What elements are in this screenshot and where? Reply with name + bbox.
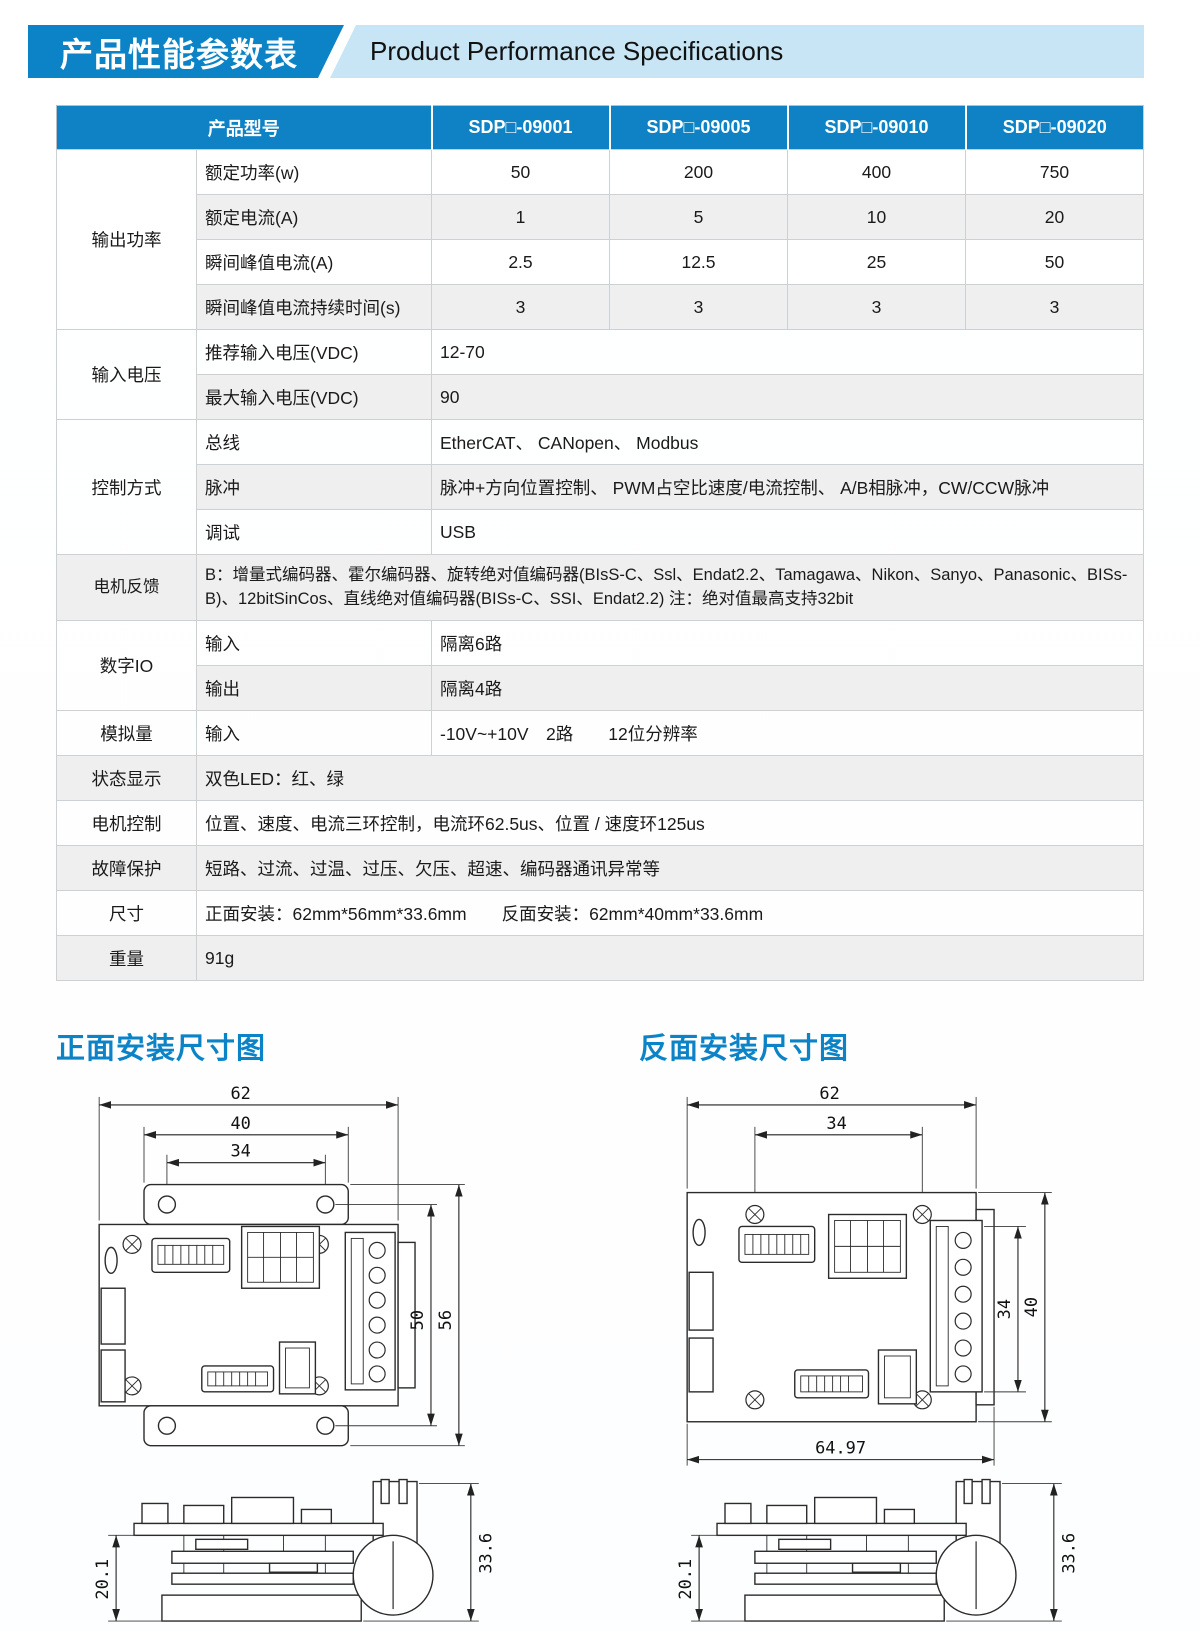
- group-digital-io: 数字IO: [57, 621, 197, 711]
- table-row: 电机反馈 B：增量式编码器、霍尔编码器、旋转绝对值编码器(BIsS-C、Ssl、…: [57, 555, 1144, 621]
- io-connector: [152, 1238, 230, 1272]
- mounting-hole: [158, 1417, 175, 1434]
- page-title-en: Product Performance Specifications: [330, 25, 1144, 78]
- table-row: 输出功率 额定功率(w) 50 200 400 750: [57, 150, 1144, 195]
- io-connector: [739, 1226, 815, 1262]
- table-row: 数字IO 输入 隔离6路: [57, 621, 1144, 666]
- dim-total-height: 33.6: [1059, 1533, 1079, 1574]
- dim-outer-height: 40: [1021, 1297, 1041, 1317]
- dim-hole-height: 50: [407, 1310, 427, 1330]
- dim-outer-height: 56: [435, 1310, 455, 1330]
- mounting-drawings: 正面安装尺寸图 62 40 34: [56, 1025, 1150, 1633]
- dim-total-width: 64.97: [815, 1438, 866, 1458]
- table-row: 额定电流(A) 1 5 10 20: [57, 195, 1144, 240]
- table-row: 重量 91g: [57, 936, 1144, 981]
- table-row: 状态显示 双色LED：红、绿: [57, 756, 1144, 801]
- side-connector: [689, 1338, 713, 1392]
- base-plate: [162, 1595, 361, 1621]
- table-header-row: 产品型号 SDP□-09001 SDP□-09005 SDP□-09010 SD…: [57, 106, 1144, 150]
- label-dimensions: 尺寸: [57, 891, 197, 936]
- led-window: [105, 1247, 117, 1273]
- base-plate: [745, 1595, 944, 1621]
- table-row: 输入电压 推荐输入电压(VDC) 12-70: [57, 330, 1144, 375]
- table-row: 最大输入电压(VDC) 90: [57, 375, 1144, 420]
- table-row: 尺寸 正面安装：62mm*56mm*33.6mm 反面安装：62mm*40mm*…: [57, 891, 1144, 936]
- front-mount-title: 正面安装尺寸图: [56, 1025, 511, 1067]
- mounting-hole: [317, 1196, 334, 1213]
- col-header-model: 产品型号: [57, 106, 432, 150]
- label-status-display: 状态显示: [57, 756, 197, 801]
- led-window: [693, 1219, 705, 1245]
- col-header-model-1: SDP□-09001: [432, 106, 610, 150]
- vent-grid: [242, 1226, 320, 1288]
- terminal-block: [930, 1220, 982, 1391]
- group-control-mode: 控制方式: [57, 420, 197, 555]
- dim-board-height: 20.1: [92, 1559, 112, 1600]
- side-connector: [101, 1350, 125, 1402]
- table-row: 脉冲 脉冲+方向位置控制、 PWM占空比速度/电流控制、 A/B相脉冲，CW/C…: [57, 465, 1144, 510]
- group-analog: 模拟量: [57, 711, 197, 756]
- front-side-view: 20.1 33.6: [92, 1480, 496, 1621]
- mounting-hole: [317, 1417, 334, 1434]
- dim-board-height: 20.1: [675, 1559, 695, 1600]
- label-motor-control: 电机控制: [57, 801, 197, 846]
- page-header: 产品性能参数表 Product Performance Specificatio…: [28, 25, 1144, 78]
- front-mount-section: 正面安装尺寸图 62 40 34: [56, 1025, 511, 1633]
- dim-inner-height: 34: [994, 1299, 1014, 1319]
- label-motor-feedback: 电机反馈: [57, 555, 197, 621]
- back-view-drawing: 62 34: [639, 1075, 1094, 1633]
- lower-board: [755, 1573, 936, 1584]
- terminal-block: [345, 1232, 395, 1389]
- mid-board: [755, 1551, 936, 1563]
- table-row: 瞬间峰值电流持续时间(s) 3 3 3 3: [57, 285, 1144, 330]
- front-view-drawing: 62 40 34: [56, 1075, 511, 1633]
- mid-board: [172, 1551, 353, 1563]
- datasheet-page: 产品性能参数表 Product Performance Specificatio…: [0, 0, 1200, 1631]
- vent-grid: [829, 1215, 907, 1279]
- mounting-hole: [158, 1196, 175, 1213]
- main-board: [717, 1523, 966, 1535]
- spec-table: 产品型号 SDP□-09001 SDP□-09005 SDP□-09010 SD…: [56, 105, 1144, 981]
- back-mount-title: 反面安装尺寸图: [639, 1025, 1094, 1067]
- page-title-cn: 产品性能参数表: [28, 25, 344, 78]
- table-row: 电机控制 位置、速度、电流三环控制，电流环62.5us、位置 / 速度环125u…: [57, 801, 1144, 846]
- back-mount-section: 反面安装尺寸图 62 34: [639, 1025, 1094, 1633]
- table-row: 调试 USB: [57, 510, 1144, 555]
- table-row: 输出 隔离4路: [57, 666, 1144, 711]
- group-output-power: 输出功率: [57, 150, 197, 330]
- dim-hole-spacing: 34: [826, 1113, 846, 1133]
- group-input-voltage: 输入电压: [57, 330, 197, 420]
- dim-total-height: 33.6: [476, 1533, 496, 1574]
- dim-bracket-width: 40: [230, 1113, 250, 1133]
- col-header-model-3: SDP□-09010: [788, 106, 966, 150]
- col-header-model-2: SDP□-09005: [610, 106, 788, 150]
- dim-outer-width: 62: [230, 1083, 250, 1103]
- table-row: 模拟量 输入 -10V~+10V 2路 12位分辨率: [57, 711, 1144, 756]
- back-side-view: 20.1 33.6: [675, 1480, 1079, 1621]
- col-header-model-4: SDP□-09020: [966, 106, 1144, 150]
- table-row: 瞬间峰值电流(A) 2.5 12.5 25 50: [57, 240, 1144, 285]
- dim-outer-width: 62: [819, 1083, 839, 1103]
- side-connector: [689, 1272, 713, 1330]
- label-weight: 重量: [57, 936, 197, 981]
- label-fault-protection: 故障保护: [57, 846, 197, 891]
- table-row: 故障保护 短路、过流、过温、过压、欠压、超速、编码器通讯异常等: [57, 846, 1144, 891]
- lower-board: [172, 1573, 353, 1584]
- side-connector: [101, 1288, 125, 1344]
- main-board: [134, 1523, 383, 1535]
- table-row: 控制方式 总线 EtherCAT、 CANopen、 Modbus: [57, 420, 1144, 465]
- dim-hole-spacing: 34: [230, 1141, 250, 1161]
